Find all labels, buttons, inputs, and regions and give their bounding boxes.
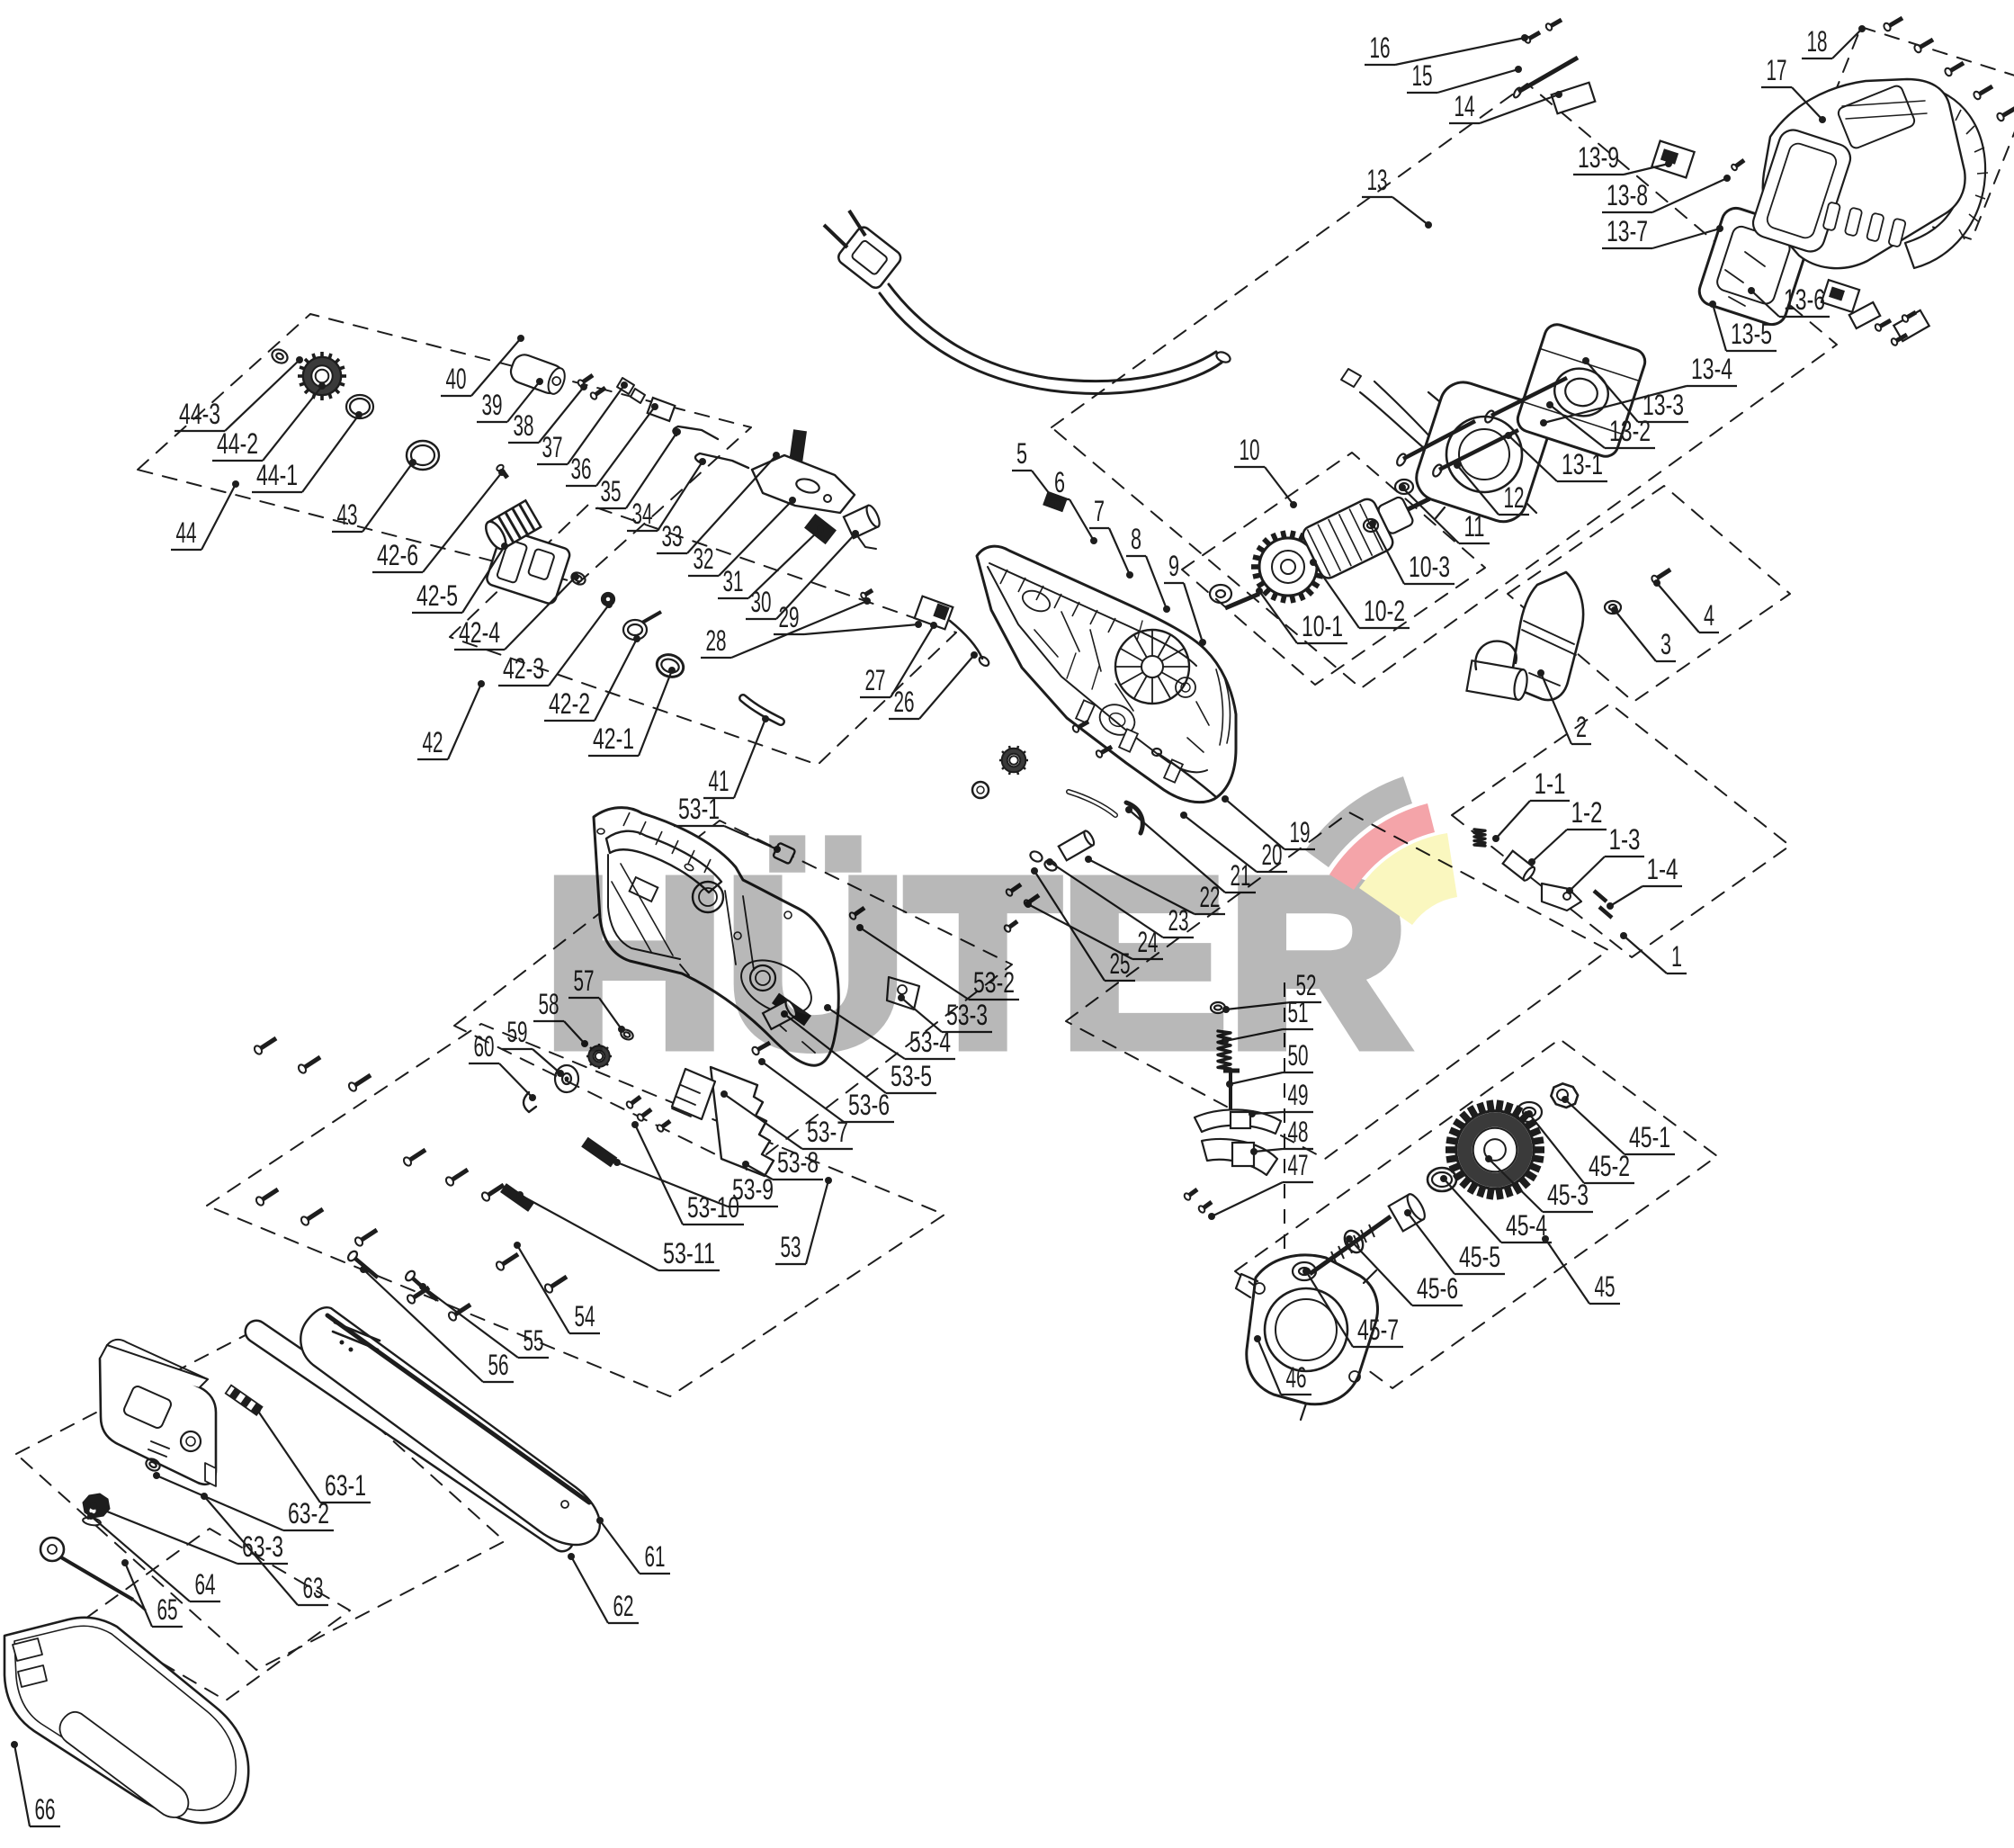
svg-text:1-4: 1-4 (1647, 853, 1678, 885)
svg-text:42-1: 42-1 (593, 722, 634, 755)
svg-text:66: 66 (35, 1793, 56, 1826)
svg-text:10: 10 (1240, 434, 1260, 466)
svg-text:13-8: 13-8 (1607, 179, 1648, 211)
svg-text:65: 65 (157, 1593, 178, 1626)
svg-text:53-10: 53-10 (687, 1191, 739, 1224)
svg-text:13-2: 13-2 (1609, 415, 1651, 447)
svg-text:42-2: 42-2 (549, 687, 590, 720)
svg-text:53-8: 53-8 (777, 1146, 819, 1179)
svg-text:5: 5 (1016, 437, 1027, 470)
svg-text:42-5: 42-5 (416, 579, 458, 612)
svg-text:42: 42 (423, 726, 443, 758)
svg-text:1: 1 (1671, 940, 1682, 973)
svg-text:26: 26 (894, 686, 915, 718)
svg-text:53-11: 53-11 (663, 1237, 715, 1269)
svg-text:39: 39 (482, 389, 503, 421)
svg-text:42-6: 42-6 (377, 539, 418, 571)
svg-text:33: 33 (662, 520, 683, 552)
svg-text:54: 54 (575, 1300, 595, 1332)
svg-text:13-7: 13-7 (1607, 215, 1648, 247)
svg-text:10-3: 10-3 (1409, 551, 1450, 583)
svg-text:10-1: 10-1 (1302, 610, 1343, 642)
svg-text:27: 27 (865, 664, 886, 696)
svg-text:46: 46 (1286, 1361, 1307, 1394)
svg-text:45-7: 45-7 (1357, 1314, 1399, 1346)
svg-text:HÜTER: HÜTER (543, 830, 1409, 1097)
svg-text:4: 4 (1704, 599, 1714, 632)
svg-text:45-6: 45-6 (1417, 1272, 1458, 1305)
svg-text:62: 62 (613, 1590, 634, 1622)
svg-text:43: 43 (337, 498, 358, 531)
svg-text:1-1: 1-1 (1535, 767, 1566, 800)
svg-text:59: 59 (507, 1016, 528, 1048)
svg-text:36: 36 (571, 453, 592, 485)
svg-text:10-2: 10-2 (1364, 595, 1405, 627)
svg-text:40: 40 (446, 363, 467, 395)
svg-text:13-1: 13-1 (1562, 448, 1603, 480)
svg-text:44: 44 (176, 516, 197, 549)
svg-text:18: 18 (1807, 25, 1828, 58)
svg-text:44-2: 44-2 (217, 427, 258, 460)
svg-text:44-3: 44-3 (179, 398, 220, 430)
svg-text:53-7: 53-7 (807, 1116, 848, 1148)
svg-text:11: 11 (1464, 510, 1485, 543)
svg-text:45: 45 (1595, 1270, 1616, 1303)
svg-text:16: 16 (1370, 31, 1391, 64)
svg-text:9: 9 (1168, 550, 1179, 582)
svg-text:2: 2 (1576, 711, 1587, 743)
svg-text:13-6: 13-6 (1784, 283, 1825, 316)
svg-text:47: 47 (1288, 1149, 1309, 1181)
svg-text:60: 60 (474, 1030, 495, 1063)
svg-text:31: 31 (723, 565, 744, 597)
svg-text:53-1: 53-1 (678, 793, 720, 825)
svg-text:55: 55 (524, 1324, 544, 1357)
svg-text:7: 7 (1094, 495, 1105, 527)
svg-text:45-2: 45-2 (1589, 1150, 1630, 1182)
svg-text:56: 56 (488, 1349, 509, 1381)
svg-text:63-2: 63-2 (288, 1497, 329, 1530)
svg-text:1-2: 1-2 (1571, 796, 1603, 829)
svg-text:17: 17 (1767, 54, 1787, 86)
svg-text:37: 37 (542, 431, 563, 463)
svg-text:29: 29 (779, 601, 800, 633)
svg-text:1-3: 1-3 (1609, 823, 1641, 856)
svg-text:13-5: 13-5 (1731, 318, 1772, 350)
svg-text:3: 3 (1660, 628, 1671, 660)
svg-text:61: 61 (645, 1540, 666, 1573)
svg-text:45-4: 45-4 (1506, 1209, 1547, 1242)
svg-text:28: 28 (706, 624, 727, 657)
svg-text:48: 48 (1288, 1116, 1309, 1148)
svg-text:6: 6 (1054, 466, 1065, 498)
svg-text:13: 13 (1367, 164, 1388, 196)
svg-text:45-3: 45-3 (1547, 1179, 1589, 1211)
svg-text:14: 14 (1455, 90, 1475, 122)
svg-text:64: 64 (195, 1568, 216, 1601)
svg-text:13-9: 13-9 (1578, 141, 1619, 174)
svg-text:32: 32 (694, 543, 714, 575)
svg-text:53: 53 (781, 1231, 801, 1263)
svg-text:63-1: 63-1 (325, 1469, 366, 1502)
svg-text:34: 34 (632, 498, 653, 530)
svg-text:45-1: 45-1 (1629, 1121, 1670, 1153)
svg-text:63: 63 (303, 1572, 324, 1604)
svg-text:44-1: 44-1 (256, 459, 298, 491)
svg-text:42-4: 42-4 (459, 616, 500, 649)
svg-text:8: 8 (1131, 523, 1141, 555)
svg-text:45-5: 45-5 (1459, 1241, 1500, 1273)
svg-text:30: 30 (751, 586, 772, 618)
svg-text:15: 15 (1412, 59, 1433, 92)
svg-text:12: 12 (1504, 481, 1525, 514)
svg-text:35: 35 (601, 475, 622, 507)
svg-text:13-4: 13-4 (1691, 353, 1732, 385)
svg-text:42-3: 42-3 (503, 652, 544, 685)
svg-text:38: 38 (514, 409, 534, 442)
